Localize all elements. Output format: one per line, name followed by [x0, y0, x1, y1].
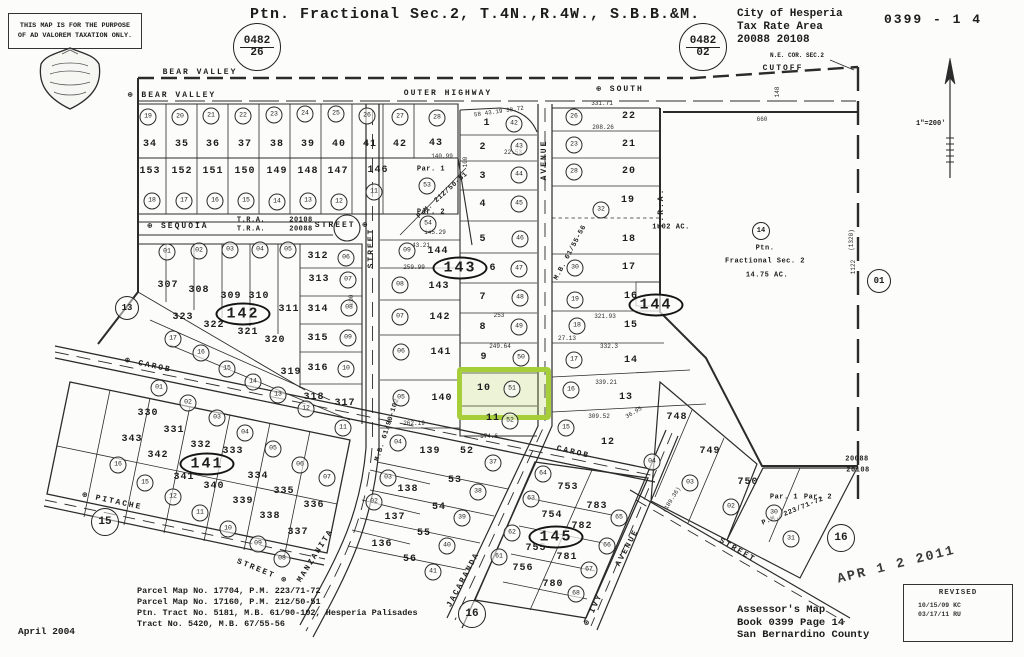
book-ref-top: 0482 — [690, 36, 716, 47]
apn-circle: 19 — [140, 109, 157, 126]
lot-number: 55 — [417, 529, 431, 539]
dimension-label: 339.21 — [595, 380, 617, 386]
lot-number: 310 — [248, 292, 269, 302]
apn-circle: 08 — [392, 277, 409, 294]
lot-number: 54 — [432, 503, 446, 513]
apn-circle: 03 — [222, 242, 239, 259]
map-title: Ptn. Fractional Sec.2, T.4N.,R.4W., S.B.… — [250, 6, 700, 23]
apn-circle: 16 — [207, 193, 224, 210]
apn-circle: 02 — [180, 395, 197, 412]
apn-circle: 17 — [176, 193, 193, 210]
revised-entry: 03/17/11 RU — [904, 610, 1012, 619]
apn-circle: 04 — [252, 242, 269, 259]
apn-circle: 12 — [298, 401, 315, 418]
lot-number: 150 — [234, 167, 255, 177]
dimension-label: 332.3 — [600, 344, 618, 350]
lot-number: 331 — [163, 426, 184, 436]
street-label: AVENUE — [541, 140, 549, 181]
lot-number: 749 — [699, 447, 720, 457]
dimension-label: 309.52 — [588, 414, 610, 420]
lot-number: 147 — [327, 167, 348, 177]
adjacent-map-ref-circle: 16 — [827, 524, 855, 552]
assessor-map-block: Assessor's Map Book 0399 Page 14 San Ber… — [737, 604, 869, 642]
scale-label: 1"=200' — [916, 120, 945, 128]
lot-number: 312 — [307, 252, 328, 262]
apn-circle: 02 — [723, 499, 740, 516]
assessor-line2: Book 0399 Page 14 — [737, 617, 869, 630]
lot-number: 3 — [479, 172, 486, 182]
lot-number: 18 — [622, 235, 636, 245]
lot-number: 341 — [173, 473, 194, 483]
lot-number: 1 — [483, 119, 490, 129]
street-label: STREET — [368, 228, 376, 269]
lot-number: 319 — [280, 368, 301, 378]
lot-number: 13 — [619, 393, 633, 403]
lot-number: 316 — [307, 364, 328, 374]
lot-number: 6 — [489, 264, 496, 274]
apn-circle: 15 — [219, 361, 236, 378]
city-name: City of Hesperia — [737, 8, 843, 21]
apn-circle: 05 — [265, 441, 282, 458]
apn-circle: 05 — [280, 242, 297, 259]
lot-number: 7 — [479, 293, 486, 303]
apn-circle: 14 — [245, 374, 262, 391]
apn-circle: 52 — [502, 413, 519, 430]
map-date: April 2004 — [18, 626, 75, 637]
apn-circle: 30 — [766, 505, 783, 522]
apn-circle: 46 — [512, 231, 529, 248]
apn-circle: 14 — [269, 194, 286, 211]
map-annotation: Par. 1 — [770, 495, 798, 502]
map-annotation: Par. 1 — [417, 167, 445, 174]
apn-circle: 27 — [392, 109, 409, 126]
apn-circle: 12 — [165, 489, 182, 506]
lot-number: 38 — [270, 140, 284, 150]
lot-number: 315 — [307, 334, 328, 344]
apn-circle: 68 — [568, 586, 585, 603]
disclaimer-line1: THIS MAP IS FOR THE PURPOSE — [9, 21, 141, 31]
apn-circle: 06 — [393, 344, 410, 361]
lot-number: 323 — [172, 313, 193, 323]
lot-number: 40 — [332, 140, 346, 150]
apn-circle: 01 — [151, 380, 168, 397]
dimension-label: 321.93 — [594, 314, 616, 320]
lot-number: 313 — [308, 275, 329, 285]
apn-circle: 43 — [511, 139, 528, 156]
assessor-map-page: THIS MAP IS FOR THE PURPOSE OF AD VALORE… — [0, 0, 1024, 657]
apn-circle: 06 — [338, 250, 355, 267]
lot-number: 149 — [266, 167, 287, 177]
block-number-oval: 142 — [215, 303, 270, 326]
apn-circle: 17 — [165, 331, 182, 348]
assessor-line3: San Bernardino County — [737, 629, 869, 642]
lot-number: 37 — [238, 140, 252, 150]
lot-number: 756 — [512, 564, 533, 574]
lot-number: 335 — [273, 487, 294, 497]
lot-number: 153 — [139, 167, 160, 177]
apn-circle: 67 — [581, 562, 598, 579]
lot-number: 314 — [307, 305, 328, 315]
apn-circle: 02 — [366, 494, 383, 511]
lot-number: 748 — [666, 413, 687, 423]
apn-circle: 07 — [340, 272, 357, 289]
map-annotation: Par. 2 — [804, 495, 832, 502]
apn-circle: 05 — [393, 390, 410, 407]
apn-circle: 16 — [563, 382, 580, 399]
adjacent-book-page-circle: 048202 — [679, 23, 727, 71]
lot-number: 43 — [429, 139, 443, 149]
apn-circle: 03 — [209, 410, 226, 427]
lot-number: 138 — [397, 485, 418, 495]
dimension-label: 249.64 — [489, 344, 511, 350]
lot-number: 336 — [303, 501, 324, 511]
street-label: T.R.A. — [658, 188, 666, 229]
street-label: ⊕ SEQUOIA — [147, 223, 208, 231]
apn-circle: 66 — [599, 538, 616, 555]
lot-number: 4 — [479, 200, 486, 210]
apn-circle: 15 — [238, 193, 255, 210]
apn-circle: 19 — [567, 292, 584, 309]
dimension-label: 148 — [775, 87, 781, 98]
lot-number: 750 — [737, 478, 758, 488]
adjacent-book-page-circle: 048226 — [233, 23, 281, 71]
lot-number: 35 — [175, 140, 189, 150]
dimension-label: 174.6 — [480, 434, 498, 440]
lot-number: 337 — [287, 528, 308, 538]
lot-number: 332 — [190, 441, 211, 451]
apn-circle: 37 — [485, 455, 502, 472]
lot-number: 39 — [301, 140, 315, 150]
lot-number: 15 — [624, 321, 638, 331]
apn-circle: 13 — [270, 387, 287, 404]
lot-number: 21 — [622, 140, 636, 150]
apn-circle: 18 — [569, 318, 586, 335]
lot-number: 340 — [203, 482, 224, 492]
note-line: Tract No. 5420, M.B. 67/55-56 — [137, 619, 418, 630]
apn-circle: 10 — [338, 361, 355, 378]
dimension-label: 660 — [757, 117, 768, 123]
lot-number: 12 — [601, 438, 615, 448]
lot-number: 320 — [264, 336, 285, 346]
tax-rate-area-codes: 20088 20108 — [737, 34, 843, 47]
lot-number: 53 — [448, 476, 462, 486]
lot-number: 140 — [431, 394, 452, 404]
dimension-label: 259.99 — [403, 265, 425, 271]
reference-notes: Parcel Map No. 17704, P.M. 223/71-72 Par… — [137, 586, 418, 630]
note-line: Parcel Map No. 17704, P.M. 223/71-72 — [137, 586, 418, 597]
lot-number: 14 — [624, 356, 638, 366]
lot-number: 321 — [237, 328, 258, 338]
lot-number: 308 — [188, 286, 209, 296]
lot-number: 10 — [477, 384, 491, 394]
apn-circle: 04 — [644, 454, 661, 471]
apn-circle: 53 — [419, 178, 436, 195]
map-annotation: 20088 — [289, 227, 313, 234]
lot-number: 342 — [147, 451, 168, 461]
assessor-line1: Assessor's Map — [737, 604, 869, 617]
apn-circle: 11 — [335, 420, 352, 437]
lot-number: 19 — [621, 196, 635, 206]
lot-number: 146 — [367, 166, 388, 176]
apn-circle: 15 — [137, 475, 154, 492]
apn-circle: 02 — [191, 243, 208, 260]
lot-number: 22 — [622, 112, 636, 122]
apn-circle: 65 — [611, 510, 628, 527]
lot-number: 42 — [393, 140, 407, 150]
lot-number: 780 — [542, 580, 563, 590]
apn-circle: 07 — [319, 470, 336, 487]
lot-number: 137 — [384, 513, 405, 523]
lot-number: 143 — [428, 282, 449, 292]
apn-circle: 48 — [512, 290, 529, 307]
adjacent-map-ref-circle: 13 — [115, 296, 139, 320]
apn-circle: 10 — [220, 521, 237, 538]
book-page-number: 0399 - 1 4 — [884, 12, 982, 27]
lot-number: 322 — [203, 321, 224, 331]
map-annotation: Fractional Sec. 2 — [725, 259, 805, 266]
lot-number: 52 — [460, 447, 474, 457]
lot-number: 144 — [427, 247, 448, 257]
lot-number: 343 — [121, 435, 142, 445]
apn-circle: 24 — [297, 106, 314, 123]
street-label: ⊕ SOUTH — [596, 86, 644, 94]
lot-number: 56 — [403, 555, 417, 565]
apn-circle: 09 — [250, 536, 267, 553]
apn-circle: 32 — [593, 202, 610, 219]
ne-corner-note: N.E. COR. SEC.2 — [770, 52, 824, 59]
lot-number: 34 — [143, 140, 157, 150]
revised-title: REVISED — [904, 589, 1012, 598]
lot-number: 330 — [137, 409, 158, 419]
dimension-label: 27.13 — [558, 336, 576, 342]
lot-number: 139 — [419, 447, 440, 457]
lot-number: 309 — [220, 292, 241, 302]
lot-number: 8 — [479, 323, 486, 333]
lot-number: 339 — [232, 497, 253, 507]
apn-circle: 18 — [144, 193, 161, 210]
tax-rate-area-label: Tax Rate Area — [737, 21, 843, 34]
apn-circle: 11 — [366, 184, 383, 201]
apn-circle: 21 — [203, 108, 220, 125]
apn-circle: 38 — [470, 484, 487, 501]
lot-number: 11 — [486, 414, 500, 424]
adjacent-map-ref-circle: 16 — [458, 600, 486, 628]
lot-number: 9 — [480, 353, 487, 363]
note-line: Parcel Map No. 17160, P.M. 212/50-51 — [137, 597, 418, 608]
apn-circle: 25 — [328, 106, 345, 123]
apn-circle: 28 — [429, 110, 446, 127]
map-annotation: Ptn. — [756, 246, 775, 253]
street-label: OUTER HIGHWAY — [404, 90, 492, 98]
apn-circle: 04 — [390, 435, 407, 452]
apn-circle: 17 — [566, 352, 583, 369]
apn-circle: 09 — [340, 330, 357, 347]
note-line: Ptn. Tract No. 5181, M.B. 61/90-102, Hes… — [137, 608, 418, 619]
map-annotation: 14.75 AC. — [746, 273, 788, 280]
apn-circle: 20 — [172, 109, 189, 126]
apn-circle: 16 — [193, 345, 210, 362]
street-label: ⊕ BEAR VALLEY — [128, 92, 216, 100]
lot-number: 783 — [586, 502, 607, 512]
apn-circle: 62 — [504, 525, 521, 542]
street-label: BEAR VALLEY — [163, 69, 238, 77]
lot-number: 17 — [622, 263, 636, 273]
book-ref-bottom: 26 — [240, 47, 274, 59]
apn-circle: 08 — [341, 300, 358, 317]
apn-circle: 11 — [192, 505, 209, 522]
apn-circle: 22 — [235, 108, 252, 125]
apn-circle: 23 — [266, 107, 283, 124]
dimension-label: 253 — [494, 313, 505, 319]
map-annotation: T.R.A. — [237, 227, 265, 234]
apn-circle: 28 — [566, 164, 583, 181]
dimension-label: 100 — [463, 157, 469, 168]
lot-number: 152 — [171, 167, 192, 177]
dimension-label: 1122 — [851, 260, 857, 274]
lot-number: 334 — [247, 472, 268, 482]
apn-circle: 07 — [392, 309, 409, 326]
apn-circle: 64 — [535, 466, 552, 483]
apn-circle: 01 — [159, 244, 176, 261]
street-label: STREET ⊕ — [315, 222, 369, 230]
dimension-label: 331.71 — [591, 101, 613, 107]
apn-circle: 15 — [558, 420, 575, 437]
apn-circle: 03 — [682, 475, 699, 492]
dimension-label: 140.99 — [431, 154, 453, 160]
revised-entry: 10/15/09 KC — [904, 601, 1012, 610]
apn-circle: 26 — [566, 109, 583, 126]
block-number-oval: 143 — [432, 257, 487, 280]
apn-circle: 06 — [292, 457, 309, 474]
apn-circle: 08 — [274, 551, 291, 568]
apn-circle: 45 — [511, 196, 528, 213]
adjacent-map-ref-circle: 14 — [752, 222, 770, 240]
adjacent-map-ref-circle: 01 — [867, 269, 891, 293]
apn-circle: 41 — [425, 564, 442, 581]
lot-number: 307 — [157, 281, 178, 291]
revised-box: REVISED 10/15/09 KC 03/17/11 RU — [903, 584, 1013, 642]
apn-circle: 23 — [566, 137, 583, 154]
lot-number: 2 — [479, 143, 486, 153]
lot-number: 142 — [429, 313, 450, 323]
apn-circle: 30 — [567, 260, 584, 277]
lot-number: 338 — [259, 512, 280, 522]
lot-number: 36 — [206, 140, 220, 150]
apn-circle: 31 — [783, 531, 800, 548]
map-annotation: 20088 — [845, 457, 869, 464]
lot-number: 41 — [363, 140, 377, 150]
map-annotation: 20108 — [289, 218, 313, 225]
apn-circle: 47 — [511, 261, 528, 278]
apn-circle: 12 — [331, 194, 348, 211]
apn-circle: 09 — [399, 243, 416, 260]
block-number-oval: 144 — [628, 294, 683, 317]
lot-number: 317 — [334, 399, 355, 409]
apn-circle: 13 — [300, 193, 317, 210]
lot-number: 20 — [622, 167, 636, 177]
apn-circle: 03 — [380, 470, 397, 487]
map-annotation: 1.02 AC. — [652, 225, 690, 232]
block-number-oval: 141 — [179, 453, 234, 476]
lot-number: 141 — [430, 348, 451, 358]
apn-circle: 61 — [491, 549, 508, 566]
apn-circle: 40 — [439, 538, 456, 555]
map-annotation: T.R.A. — [237, 218, 265, 225]
lot-number: 781 — [556, 553, 577, 563]
apn-circle: 04 — [237, 425, 254, 442]
apn-circle: 44 — [511, 167, 528, 184]
apn-circle: 54 — [420, 216, 437, 233]
apn-circle: 42 — [506, 116, 523, 133]
dimension-label: (1320) — [849, 229, 855, 251]
adjacent-map-ref-circle: 15 — [91, 508, 119, 536]
lot-number: 311 — [278, 305, 299, 315]
disclaimer-line2: OF AD VALOREM TAXATION ONLY. — [9, 31, 141, 41]
street-label: CUTOFF — [763, 65, 804, 73]
lot-number: 753 — [557, 483, 578, 493]
dimension-label: 208.26 — [592, 125, 614, 131]
tax-rate-area-block: City of Hesperia Tax Rate Area 20088 201… — [737, 8, 843, 47]
apn-circle: 51 — [504, 381, 521, 398]
apn-circle: 63 — [523, 491, 540, 508]
lot-number: 148 — [297, 167, 318, 177]
apn-circle: 26 — [359, 108, 376, 125]
apn-circle: 16 — [110, 457, 127, 474]
apn-circle: 39 — [454, 510, 471, 527]
lot-number: 151 — [202, 167, 223, 177]
lot-number: 754 — [541, 511, 562, 521]
lot-number: 5 — [479, 235, 486, 245]
book-ref-top: 0482 — [244, 36, 270, 47]
apn-circle: 49 — [511, 319, 528, 336]
apn-circle: 50 — [513, 350, 530, 367]
book-ref-bottom: 02 — [686, 47, 720, 59]
map-annotation: 20108 — [846, 468, 870, 475]
lot-number: 136 — [371, 540, 392, 550]
taxation-disclaimer: THIS MAP IS FOR THE PURPOSE OF AD VALORE… — [8, 13, 142, 49]
dimension-label: 262.19 — [403, 421, 425, 427]
block-number-oval: 145 — [528, 526, 583, 549]
